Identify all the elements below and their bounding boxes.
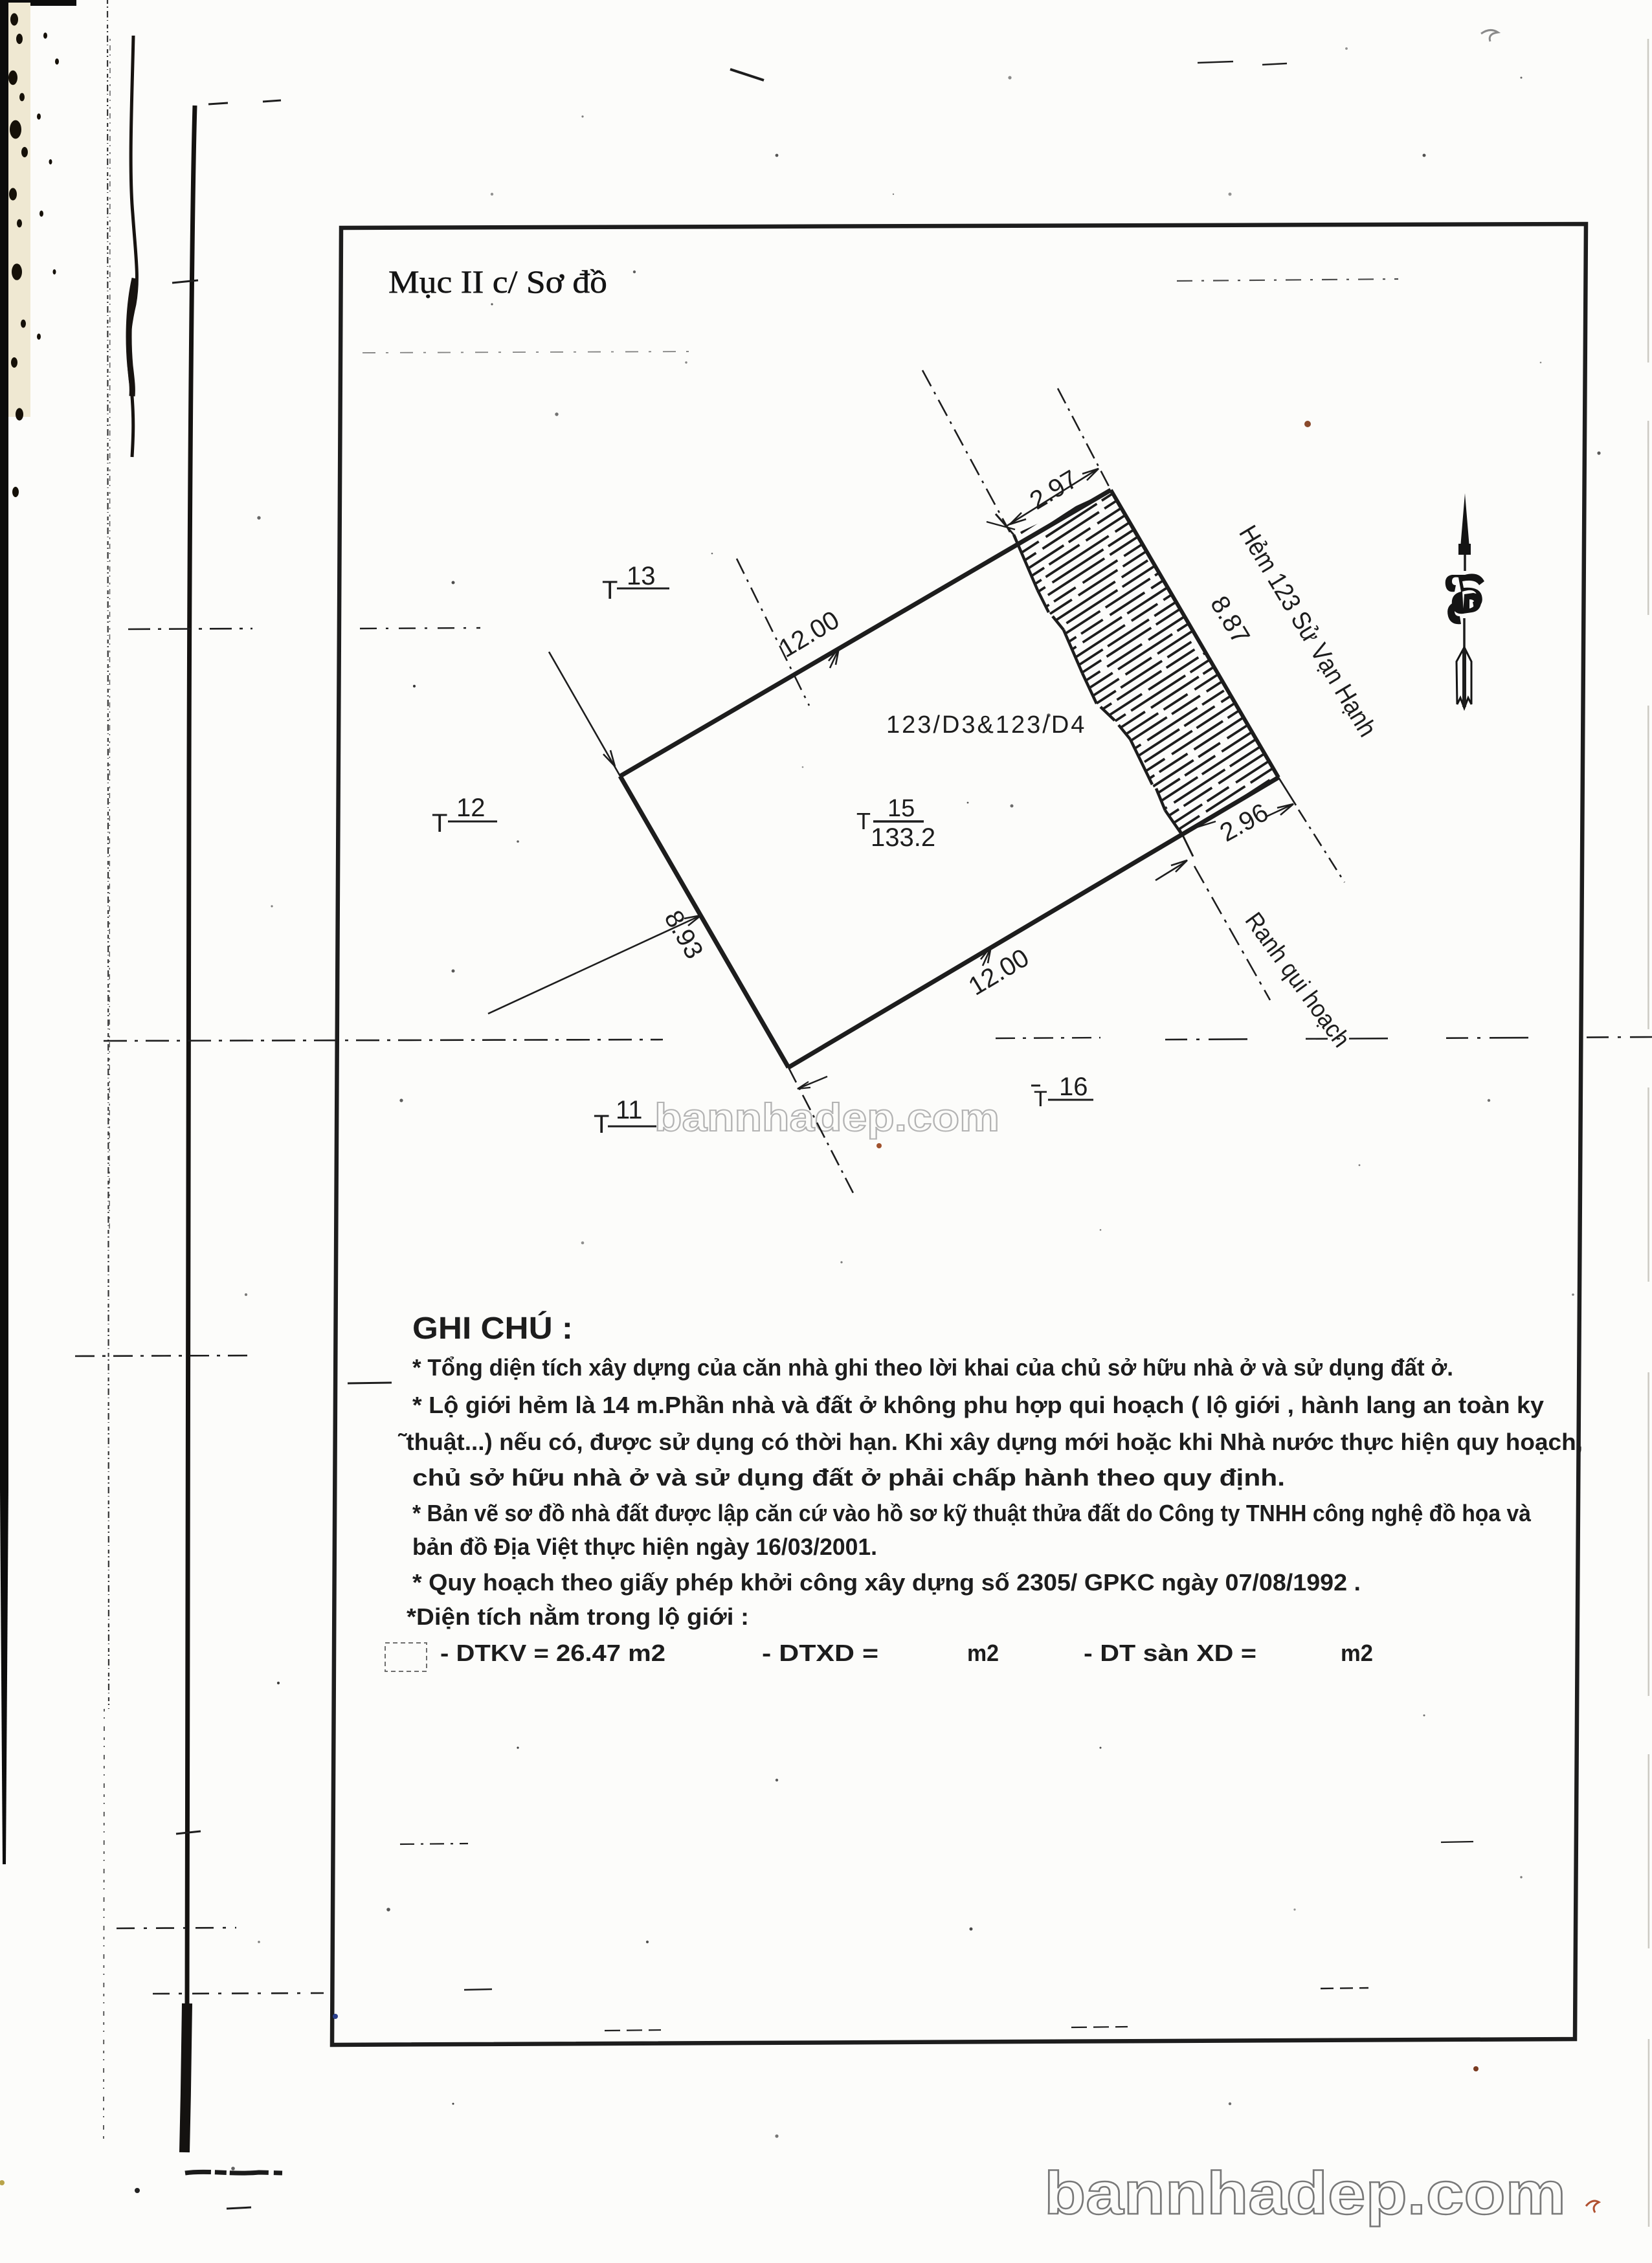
svg-text:12: 12 [456,794,486,822]
svg-text:133.2: 133.2 [871,823,935,852]
svg-text:123/D3&123/D4: 123/D3&123/D4 [886,711,1086,739]
svg-text:* Lộ giới hẻm là 14 m.Phần nhà: * Lộ giới hẻm là 14 m.Phần nhà và đất ở … [412,1392,1544,1418]
svg-text:- DTKV = 26.47 m2: - DTKV = 26.47 m2 [440,1640,665,1666]
svg-text:*Diện tích nằm trong lộ giới :: *Diện tích nằm trong lộ giới : [407,1603,749,1630]
svg-text:15: 15 [887,795,915,822]
svg-text:bản đồ Địa Việt thực hiện ngày: bản đồ Địa Việt thực hiện ngày 16/03/200… [412,1533,877,1560]
svg-text:T: T [1034,1087,1047,1111]
svg-text:- DTXD =: - DTXD = [762,1640,878,1666]
svg-text:13: 13 [627,562,656,590]
svg-text:T: T [432,809,447,838]
svg-text:* Quy hoạch theo giấy phép khở: * Quy hoạch theo giấy phép khởi công xây… [412,1569,1361,1596]
svg-text:˜thuật...) nếu có, được sử dụn: ˜thuật...) nếu có, được sử dụng có thời … [397,1429,1583,1455]
svg-text:11: 11 [616,1096,643,1124]
svg-text:Mục II c/ Sơ đồ: Mục II c/ Sơ đồ [388,263,607,300]
svg-text:GHI CHÚ :: GHI CHÚ : [412,1310,573,1346]
svg-text:m2: m2 [1341,1640,1373,1666]
svg-text:T: T [856,808,871,834]
svg-text:* Bản vẽ sơ đồ nhà đất được lậ: * Bản vẽ sơ đồ nhà đất được lập căn cứ v… [412,1500,1532,1526]
svg-text:bannhadep.com: bannhadep.com [654,1096,999,1139]
svg-text:- DT sàn XD =: - DT sàn XD = [1084,1640,1256,1666]
svg-text:chủ sở hữu nhà ở và sử dụng đấ: chủ sở hữu nhà ở và sử dụng đất ở phải c… [412,1464,1285,1491]
svg-text:* Tổng diện tích xây dựng của: * Tổng diện tích xây dựng của căn nhà gh… [412,1354,1453,1381]
svg-text:bannhadep.com: bannhadep.com [1044,2159,1566,2227]
svg-text:m2: m2 [967,1640,999,1666]
svg-text:T: T [594,1110,609,1139]
svg-text:T: T [602,576,618,605]
svg-text:16: 16 [1059,1073,1088,1101]
